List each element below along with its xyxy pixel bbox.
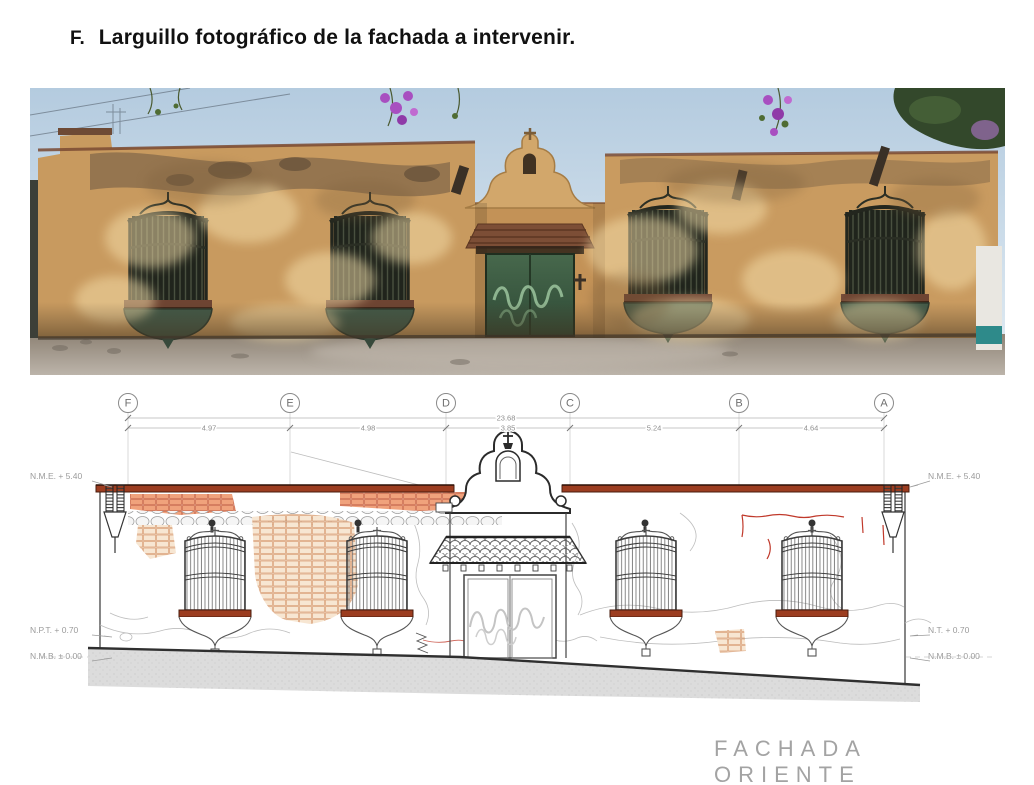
grid-bubble-f: F <box>125 398 132 410</box>
page-title-index: F. <box>70 28 85 50</box>
dim-seg-fe: 4.97 <box>202 424 217 433</box>
wall-plaque <box>436 503 452 512</box>
elevation-svg: F E D C B A 23.68 4.97 4.98 <box>0 385 1034 715</box>
document-page: F. Larguillo fotográfico de la fachada a… <box>0 0 1034 785</box>
drawing-caption: FACHADA ORIENTE <box>714 736 1034 785</box>
grid-bubbles: F E D C B A <box>119 394 894 413</box>
grid-bubble-e: E <box>286 398 293 410</box>
tiled-canopy <box>430 537 586 563</box>
level-nt-right: N.T. + 0.70 <box>928 625 970 635</box>
facade-photo-svg <box>30 88 1005 375</box>
pediment <box>446 431 570 513</box>
level-nme-left: N.M.E. + 5.40 <box>30 471 82 481</box>
elevation-drawing: F E D C B A 23.68 4.97 4.98 <box>0 385 1034 715</box>
photo-base-grime <box>38 302 998 338</box>
dim-seg-dc: 3.85 <box>501 424 516 433</box>
photo-white-pillar <box>976 246 1002 350</box>
grid-bubble-d: D <box>442 398 450 410</box>
dim-seg-ed: 4.98 <box>361 424 376 433</box>
dim-seg-cb: 5.24 <box>647 424 662 433</box>
grid-bubble-c: C <box>566 398 574 410</box>
level-nmb-left: N.M.B. ± 0.00 <box>30 651 82 661</box>
dim-total: 23.68 <box>497 414 516 423</box>
level-nme-right: N.M.E. + 5.40 <box>928 471 980 481</box>
page-title-text: Larguillo fotográfico de la fachada a in… <box>99 26 576 50</box>
dim-seg-ba: 4.64 <box>804 424 819 433</box>
level-nmb-right: N.M.B. ± 0.00 <box>928 651 980 661</box>
page-title: F. Larguillo fotográfico de la fachada a… <box>70 26 575 50</box>
grid-bubble-b: B <box>735 398 742 410</box>
facade-photo <box>30 88 1005 375</box>
grid-bubble-a: A <box>880 398 888 410</box>
level-npt-left: N.P.T. + 0.70 <box>30 625 79 635</box>
dimension-lines: 23.68 4.97 4.98 3.85 5.24 4.64 <box>125 414 887 433</box>
